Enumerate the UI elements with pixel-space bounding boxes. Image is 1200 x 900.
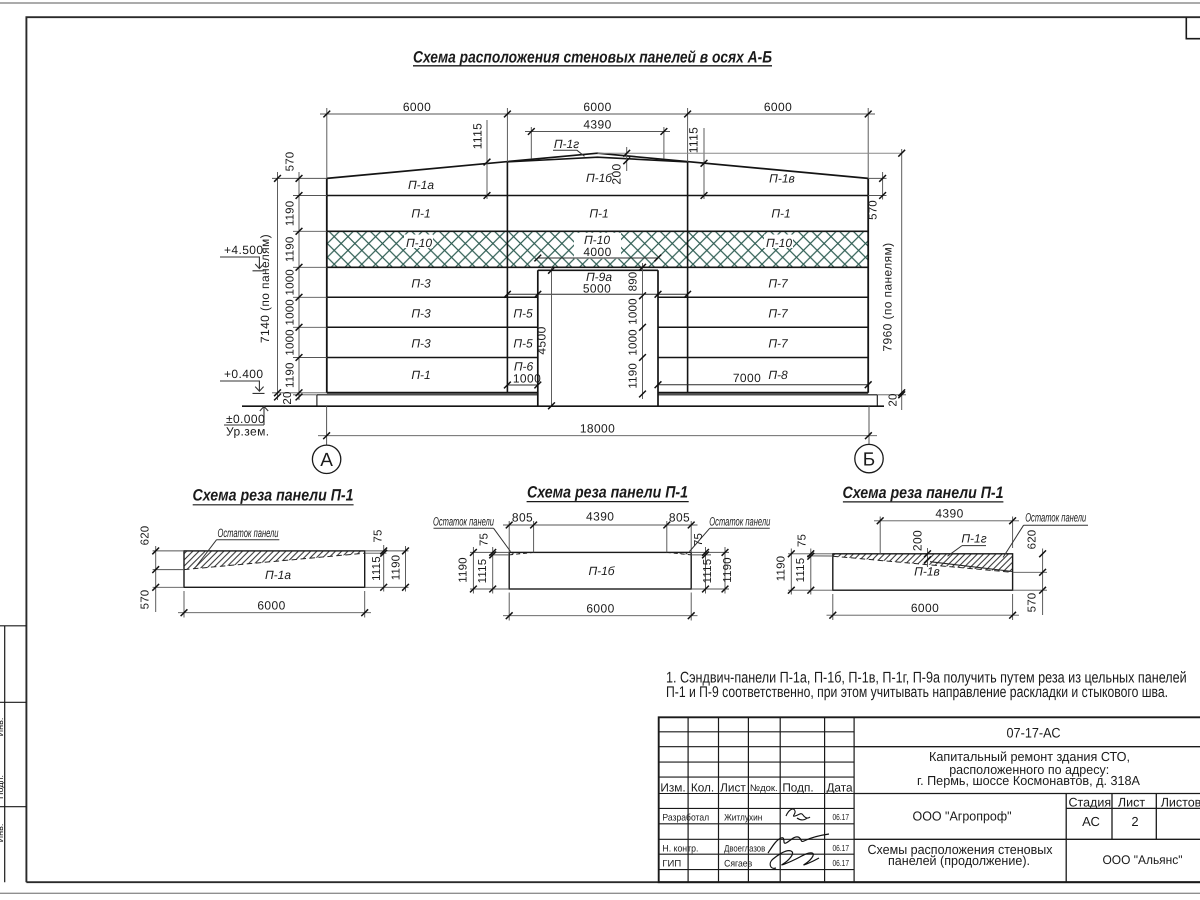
svg-text:1000: 1000 [628, 298, 640, 324]
svg-text:06.17: 06.17 [833, 812, 850, 822]
svg-text:75: 75 [373, 529, 385, 542]
svg-text:570: 570 [1027, 593, 1039, 613]
svg-text:П-1а: П-1а [265, 568, 291, 582]
svg-text:ООО "Агропроф": ООО "Агропроф" [913, 808, 1012, 823]
svg-text:П-3: П-3 [411, 307, 431, 321]
svg-text:П-8: П-8 [768, 368, 788, 382]
svg-text:1000: 1000 [285, 329, 297, 355]
svg-text:АС: АС [1082, 814, 1100, 829]
svg-text:1190: 1190 [628, 363, 640, 389]
svg-text:№док.: №док. [750, 783, 778, 794]
svg-text:4500: 4500 [535, 326, 549, 354]
svg-text:Схема расположения стеновых па: Схема расположения стеновых панелей в ос… [413, 49, 772, 67]
svg-text:П-1в: П-1в [914, 565, 940, 579]
svg-text:07-17-АС: 07-17-АС [1007, 725, 1061, 740]
svg-text:Лист: Лист [720, 780, 746, 794]
svg-text:1000: 1000 [285, 269, 297, 295]
svg-text:1190: 1190 [458, 557, 470, 583]
svg-text:1115: 1115 [687, 127, 701, 154]
svg-text:1190: 1190 [722, 557, 734, 583]
svg-text:200: 200 [610, 163, 624, 184]
svg-text:5000: 5000 [583, 282, 611, 296]
svg-text:1000: 1000 [285, 299, 297, 325]
svg-text:6000: 6000 [403, 100, 431, 114]
svg-text:Стадия: Стадия [1068, 795, 1111, 809]
svg-text:Подп.: Подп. [0, 775, 5, 799]
svg-text:Инв.: Инв. [0, 824, 5, 843]
svg-text:П-7: П-7 [768, 337, 789, 351]
svg-text:П-1: П-1 [411, 207, 430, 221]
svg-text:Схема реза панели П-1: Схема реза панели П-1 [527, 484, 688, 502]
svg-text:Кол.: Кол. [691, 780, 714, 794]
svg-text:+0.400: +0.400 [224, 367, 263, 381]
svg-text:75: 75 [479, 533, 491, 546]
svg-text:805: 805 [512, 511, 533, 525]
svg-text:ГИП: ГИП [662, 858, 681, 869]
svg-text:А: А [320, 450, 333, 471]
svg-text:200: 200 [911, 530, 925, 551]
svg-text:4390: 4390 [586, 510, 614, 524]
svg-text:1000: 1000 [513, 372, 541, 386]
svg-text:Схема реза панели П-1: Схема реза панели П-1 [843, 484, 1004, 502]
svg-text:П-1г: П-1г [961, 532, 986, 546]
svg-text:6000: 6000 [586, 602, 614, 616]
svg-text:18000: 18000 [580, 422, 615, 436]
svg-text:6000: 6000 [764, 100, 792, 114]
svg-text:П-5: П-5 [513, 337, 533, 351]
svg-text:20: 20 [282, 391, 294, 404]
svg-text:1190: 1190 [776, 556, 788, 582]
svg-text:6000: 6000 [911, 601, 939, 615]
svg-text:П-1: П-1 [411, 368, 430, 382]
svg-text:ООО "Альянс": ООО "Альянс" [1103, 853, 1183, 867]
svg-text:7960 (по панелям): 7960 (по панелям) [881, 242, 895, 351]
svg-text:Остаток панели: Остаток панели [1025, 511, 1086, 525]
svg-text:6000: 6000 [583, 100, 611, 114]
svg-text:П-3: П-3 [411, 277, 431, 291]
svg-text:620: 620 [1027, 530, 1039, 550]
svg-text:Ур.зем.: Ур.зем. [226, 425, 270, 439]
svg-text:Лист: Лист [1118, 795, 1145, 809]
svg-text:Остаток панели: Остаток панели [709, 515, 770, 529]
svg-text:П-1: П-1 [589, 207, 608, 221]
svg-text:1115: 1115 [471, 123, 485, 150]
svg-text:П-1г: П-1г [554, 137, 579, 151]
svg-text:620: 620 [140, 526, 152, 546]
svg-text:75: 75 [693, 533, 705, 546]
svg-text:П-1в: П-1в [769, 172, 795, 186]
svg-text:П-10: П-10 [766, 236, 792, 250]
svg-text:Б: Б [863, 449, 875, 470]
svg-text:4390: 4390 [935, 507, 963, 521]
svg-text:Сягаев: Сягаев [724, 858, 752, 869]
svg-text:Подп.: Подп. [782, 780, 813, 794]
svg-text:П-1: П-1 [771, 207, 790, 221]
svg-text:П-7: П-7 [768, 277, 789, 291]
svg-text:805: 805 [669, 511, 690, 525]
svg-text:4390: 4390 [583, 118, 611, 132]
svg-text:1000: 1000 [628, 329, 640, 355]
svg-text:75: 75 [797, 534, 809, 547]
svg-text:Остаток панели: Остаток панели [218, 526, 279, 540]
svg-text:Остаток панели: Остаток панели [433, 515, 494, 529]
svg-text:П-3: П-3 [411, 337, 431, 351]
svg-text:06.17: 06.17 [833, 843, 850, 853]
svg-text:1115: 1115 [477, 559, 489, 584]
svg-text:П-5: П-5 [513, 307, 533, 321]
svg-text:Дата: Дата [826, 780, 853, 794]
svg-text:Изм.: Изм. [660, 780, 685, 794]
svg-text:П-10: П-10 [406, 236, 432, 250]
svg-text:П-1 и П-9 соответственно, при: П-1 и П-9 соответственно, при этом учиты… [666, 684, 1168, 701]
svg-text:Житлухин: Житлухин [724, 812, 762, 823]
svg-text:Н. контр.: Н. контр. [662, 844, 698, 855]
svg-text:1190: 1190 [285, 237, 297, 263]
svg-text:панелей (продолжение).: панелей (продолжение). [888, 853, 1030, 868]
svg-text:1190: 1190 [285, 362, 297, 388]
svg-text:Схема реза панели П-1: Схема реза панели П-1 [193, 487, 354, 505]
svg-text:6000: 6000 [257, 599, 285, 613]
svg-text:20: 20 [888, 393, 900, 406]
svg-text:06.17: 06.17 [833, 858, 850, 868]
svg-text:570: 570 [140, 590, 152, 610]
svg-text:Листов: Листов [1161, 795, 1200, 809]
svg-text:П-1б: П-1б [588, 564, 615, 578]
svg-text:П-7: П-7 [768, 307, 789, 321]
svg-text:1115: 1115 [795, 558, 807, 583]
svg-text:570: 570 [285, 152, 297, 172]
svg-text:2: 2 [1131, 814, 1138, 829]
svg-text:Двоеглазов: Двоеглазов [724, 844, 765, 855]
svg-text:890: 890 [628, 272, 640, 292]
svg-text:4000: 4000 [583, 245, 611, 259]
svg-text:7000: 7000 [733, 371, 761, 385]
svg-text:1115: 1115 [702, 559, 714, 584]
svg-text:1190: 1190 [391, 555, 403, 581]
svg-text:г. Пермь, шоссе Космонавтов, д: г. Пермь, шоссе Космонавтов, д. 318А [917, 773, 1140, 788]
svg-text:570: 570 [868, 200, 880, 220]
svg-text:П-1а: П-1а [408, 178, 434, 192]
svg-text:+4.500: +4.500 [224, 243, 263, 257]
svg-text:1115: 1115 [371, 556, 383, 581]
svg-text:Разработал: Разработал [662, 812, 709, 823]
svg-text:1190: 1190 [285, 201, 297, 227]
svg-text:Инв.: Инв. [0, 718, 5, 737]
